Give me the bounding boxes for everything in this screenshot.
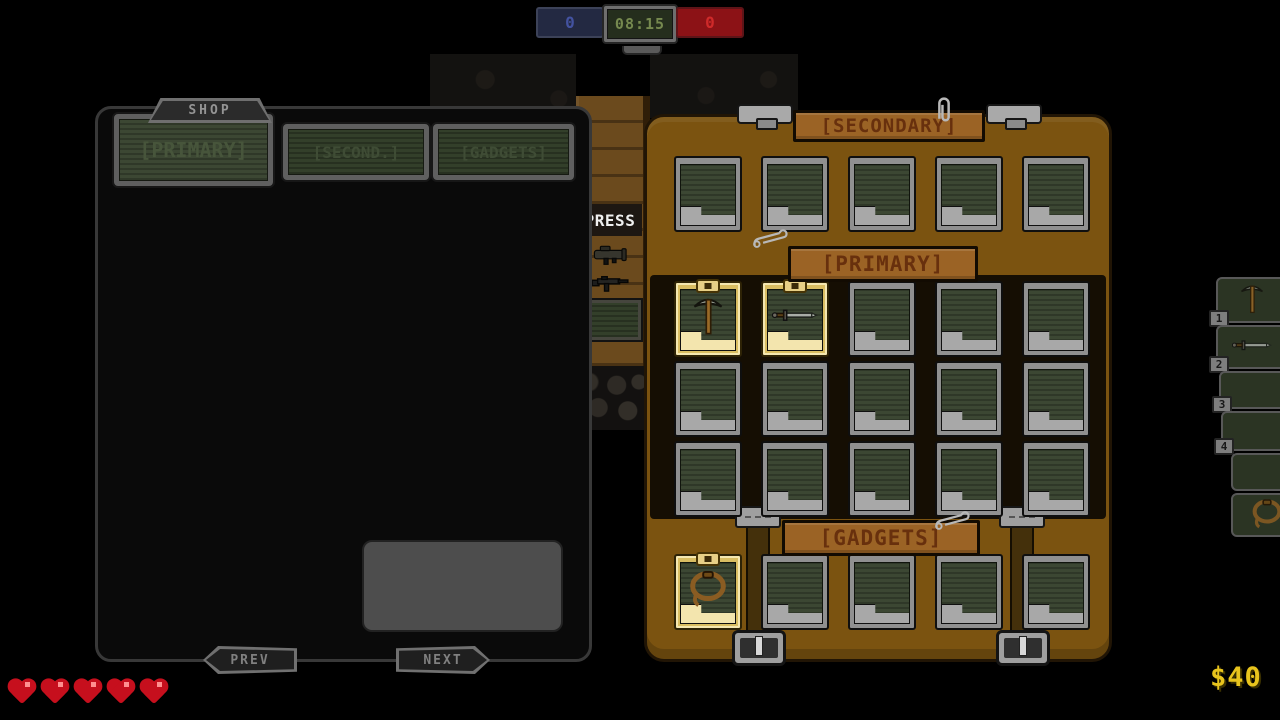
section-label-primary: [PRIMARY] — [788, 246, 978, 282]
shop-title: SHOP — [148, 98, 272, 123]
team-red-score: 0 — [676, 7, 744, 38]
heart-icon — [72, 676, 104, 706]
heart-icon — [138, 676, 170, 706]
pickaxe-icon — [1232, 281, 1272, 315]
paperclip-icon — [933, 94, 955, 128]
inventory-slot-empty[interactable] — [1022, 156, 1090, 232]
shop-title-tab: SHOP — [148, 98, 272, 123]
hotbar-slot[interactable]: 2 — [1216, 325, 1280, 369]
gadgets-slot-row — [674, 554, 1090, 630]
inventory-slot-filled[interactable] — [674, 281, 742, 357]
inventory-slot-empty[interactable] — [1022, 554, 1090, 630]
blue-score-value: 0 — [565, 13, 575, 32]
shop-empty-slot — [362, 540, 563, 632]
tab-primary[interactable]: [PRIMARY] — [112, 112, 275, 188]
timer-value: 08:15 — [615, 15, 665, 33]
section-label-secondary: [SECONDARY] — [793, 110, 985, 142]
inventory-slot-empty[interactable] — [761, 554, 829, 630]
safety-pin-icon — [934, 510, 970, 534]
heart-icon — [39, 676, 71, 706]
heart-icon — [105, 676, 137, 706]
primary-slot-row-1 — [674, 281, 1090, 357]
hotbar-slot[interactable] — [1231, 493, 1280, 537]
tab-gadgets[interactable]: [GADGETS] — [431, 122, 576, 182]
tab-secondary-label: [SECOND.] — [313, 143, 400, 162]
latch-icon — [696, 279, 720, 293]
heart-icon — [6, 676, 38, 706]
lasso-icon — [1247, 496, 1280, 530]
health-hearts — [6, 676, 171, 706]
sword-icon — [1232, 328, 1272, 362]
inventory-slot-empty[interactable] — [674, 361, 742, 437]
hotbar-key-badge: 4 — [1214, 438, 1234, 455]
primary-slot-row-2 — [674, 361, 1090, 437]
prev-button[interactable]: PREV — [203, 646, 297, 674]
pickaxe-icon — [685, 293, 731, 337]
latch-icon — [696, 552, 720, 566]
prev-button-label: PREV — [203, 646, 297, 674]
tab-secondary[interactable]: [SECOND.] — [281, 122, 431, 182]
next-button[interactable]: NEXT — [396, 646, 490, 674]
chest-clasp — [986, 104, 1042, 124]
inventory-slot-empty[interactable] — [1022, 281, 1090, 357]
hotbar-slot[interactable]: 1 — [1216, 277, 1280, 323]
inventory-slot-empty[interactable] — [761, 361, 829, 437]
hotbar-slot[interactable] — [1231, 453, 1280, 491]
strap-buckle-icon — [996, 630, 1050, 666]
match-timer: 08:15 — [602, 4, 678, 44]
inventory-slot-empty[interactable] — [848, 281, 916, 357]
tab-primary-label: [PRIMARY] — [139, 138, 247, 162]
inventory-slot-empty[interactable] — [848, 441, 916, 517]
next-button-label: NEXT — [396, 646, 490, 674]
inventory-slot-empty[interactable] — [674, 441, 742, 517]
tab-gadgets-label: [GADGETS] — [460, 143, 547, 162]
inventory-slot-empty[interactable] — [1022, 361, 1090, 437]
red-score-value: 0 — [705, 13, 715, 32]
inventory-slot-empty[interactable] — [848, 361, 916, 437]
inventory-slot-filled[interactable] — [761, 281, 829, 357]
scoreboard: 0 08:15 0 — [536, 4, 744, 54]
hotbar-slot[interactable]: 4 — [1221, 411, 1280, 451]
chest-clasp — [737, 104, 793, 124]
inventory-slot-empty[interactable] — [935, 361, 1003, 437]
inventory-slot-empty[interactable] — [935, 156, 1003, 232]
safety-pin-icon — [752, 228, 788, 252]
hotbar-slot[interactable]: 3 — [1219, 371, 1280, 409]
game-screen: PRESS 0 08:15 0 SHOP [PRIMARY] [SECOND.]… — [0, 0, 1280, 720]
inventory-slot-empty[interactable] — [674, 156, 742, 232]
primary-label: [PRIMARY] — [822, 252, 945, 276]
press-sign-label: PRESS — [585, 211, 636, 230]
inventory-slot-empty[interactable] — [935, 554, 1003, 630]
sword-icon — [772, 293, 818, 337]
secondary-slot-row — [674, 156, 1090, 232]
inventory-slot-empty[interactable] — [761, 156, 829, 232]
money-amount: $40 — [1210, 662, 1262, 693]
team-blue-score: 0 — [536, 7, 604, 38]
inventory-slot-empty[interactable] — [935, 281, 1003, 357]
inventory-slot-empty[interactable] — [848, 156, 916, 232]
inventory-slot-empty[interactable] — [935, 441, 1003, 517]
inventory-slot-empty[interactable] — [848, 554, 916, 630]
inventory-slot-filled[interactable] — [674, 554, 742, 630]
inventory-slot-empty[interactable] — [761, 441, 829, 517]
gadgets-label: [GADGETS] — [820, 526, 943, 550]
strap-buckle-icon — [732, 630, 786, 666]
primary-slot-row-3 — [674, 441, 1090, 517]
scoreboard-notch — [622, 46, 662, 55]
lasso-icon — [685, 566, 731, 610]
inventory-slot-empty[interactable] — [1022, 441, 1090, 517]
